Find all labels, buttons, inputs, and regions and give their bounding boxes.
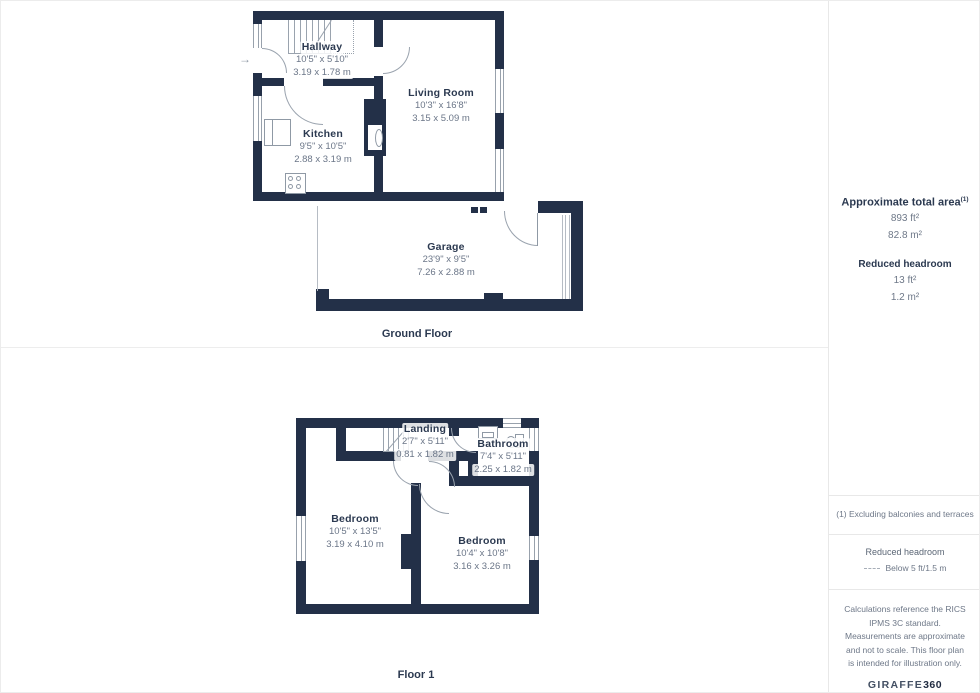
room-dim-metric: 2.25 x 1.82 m [472, 464, 534, 477]
garage-door-line [562, 215, 563, 299]
total-area-m: 82.8 m² [829, 227, 980, 244]
room-dim-imperial: 7'4" x 5'11" [478, 451, 528, 464]
floor-name-ground: Ground Floor [382, 328, 452, 340]
room-name: Bedroom [329, 513, 381, 526]
burner-icon [288, 184, 293, 189]
door-arc [419, 484, 449, 514]
room-label-kitchen: Kitchen 9'5" x 10'5" 2.88 x 3.19 m [292, 128, 354, 166]
room-name: Landing [402, 423, 448, 436]
sink-icon [264, 119, 291, 146]
room-dim-metric: 2.88 x 3.19 m [292, 154, 354, 167]
window [253, 24, 262, 48]
chimney-breast [401, 534, 421, 569]
door-arc [383, 47, 410, 74]
window [296, 516, 306, 561]
window [529, 536, 539, 560]
brand-suffix: 360 [923, 679, 942, 691]
burner-icon [296, 176, 301, 181]
door-arc [262, 48, 287, 73]
wall [262, 78, 284, 86]
wall [571, 213, 583, 299]
threshold-mark [480, 207, 487, 213]
giraffe360-logo: GIRAFFE360 [843, 679, 967, 691]
entry-arrow-icon: → [239, 53, 251, 65]
dashed-line-icon [864, 568, 880, 569]
room-dim-metric: 3.15 x 5.09 m [410, 113, 472, 126]
garage-door-line [565, 215, 566, 299]
garage-boundary-line [317, 206, 318, 291]
threshold-mark [471, 207, 478, 213]
room-dim-metric: 3.19 x 4.10 m [324, 539, 386, 552]
room-dim-imperial: 10'5" x 13'5" [327, 526, 383, 539]
wall [296, 604, 539, 614]
room-label-garage: Garage 23'9" x 9'5" 7.26 x 2.88 m [415, 241, 477, 279]
room-dim-imperial: 10'4" x 10'8" [454, 548, 510, 561]
room-dim-imperial: 9'5" x 10'5" [298, 141, 349, 154]
legend-section: Reduced headroom Below 5 ft/1.5 m [829, 534, 980, 589]
room-name: Bathroom [475, 438, 530, 451]
footnote-section: (1) Excluding balconies and terraces [829, 495, 980, 534]
wall [459, 476, 529, 486]
room-name: Garage [425, 241, 466, 254]
footnote-text: (1) Excluding balconies and terraces [836, 509, 974, 519]
reduced-headroom-title: Reduced headroom [829, 257, 980, 272]
door-opening [253, 48, 262, 73]
room-dim-metric: 7.26 x 2.88 m [415, 267, 477, 280]
room-label-bedroom-1: Bedroom 10'5" x 13'5" 3.19 x 4.10 m [324, 513, 386, 551]
door-arc [393, 461, 418, 486]
area-summary: Approximate total area(1) 893 ft² 82.8 m… [829, 193, 980, 306]
disclaimer-section: Calculations reference the RICS IPMS 3C … [829, 589, 980, 693]
disclaimer-text: Calculations reference the RICS IPMS 3C … [843, 603, 967, 671]
burner-icon [296, 184, 301, 189]
room-name: Living Room [406, 87, 476, 100]
window [495, 149, 504, 192]
door-arc [504, 211, 538, 246]
garage-door-line [569, 215, 570, 299]
room-label-hallway: Hallway 10'5" x 5'10" 3.19 x 1.78 m [291, 41, 353, 79]
floor-name-1: Floor 1 [398, 669, 435, 681]
room-label-bathroom: Bathroom 7'4" x 5'11" 2.25 x 1.82 m [472, 438, 534, 476]
room-name: Bedroom [456, 535, 508, 548]
total-area-title: Approximate total area(1) [829, 193, 980, 210]
legend-value: Below 5 ft/1.5 m [886, 563, 947, 573]
room-dim-imperial: 10'5" x 5'10" [294, 54, 350, 67]
room-label-landing: Landing 2'7" x 5'11" 0.81 x 1.82 m [394, 423, 456, 461]
wall [316, 299, 583, 311]
fireplace-icon [375, 129, 383, 147]
footnote-marker: (1) [961, 196, 969, 203]
room-label-bedroom-2: Bedroom 10'4" x 10'8" 3.16 x 3.26 m [451, 535, 513, 573]
total-area-ft: 893 ft² [829, 210, 980, 227]
room-dim-metric: 0.81 x 1.82 m [394, 449, 456, 462]
room-name: Hallway [300, 41, 345, 54]
wall [538, 201, 583, 213]
wall [323, 78, 374, 86]
sink-divider [272, 120, 273, 145]
brand-name: GIRAFFE [868, 679, 923, 691]
ground-floor-plan: → Hallway 10'5" x 5'10" 3.19 x 1.78 m Ki… [1, 1, 828, 348]
info-sidebar: Approximate total area(1) 893 ft² 82.8 m… [828, 1, 980, 693]
window [503, 418, 521, 428]
room-name: Kitchen [301, 128, 345, 141]
room-dim-imperial: 10'3" x 16'8" [413, 100, 469, 113]
room-dim-metric: 3.16 x 3.26 m [451, 561, 513, 574]
room-dim-imperial: 23'9" x 9'5" [421, 254, 472, 267]
legend-title: Reduced headroom [829, 547, 980, 557]
room-label-living-room: Living Room 10'3" x 16'8" 3.15 x 5.09 m [406, 87, 476, 125]
reduced-headroom-m: 1.2 m² [829, 289, 980, 306]
burner-icon [288, 176, 293, 181]
window [253, 96, 262, 141]
room-dim-metric: 3.19 x 1.78 m [291, 67, 353, 80]
reduced-headroom-ft: 13 ft² [829, 272, 980, 289]
total-area-label: Approximate total area [841, 197, 960, 209]
door-leaf [537, 213, 538, 246]
floorplan-page: → Hallway 10'5" x 5'10" 3.19 x 1.78 m Ki… [0, 0, 980, 693]
window [495, 69, 504, 113]
door-opening [374, 47, 383, 76]
wall [484, 293, 503, 299]
wall [341, 451, 401, 461]
room-dim-imperial: 2'7" x 5'11" [400, 436, 450, 449]
legend-row: Below 5 ft/1.5 m [829, 563, 980, 573]
floor-1-plan: Landing 2'7" x 5'11" 0.81 x 1.82 m Bathr… [1, 348, 828, 693]
wall [253, 11, 504, 20]
